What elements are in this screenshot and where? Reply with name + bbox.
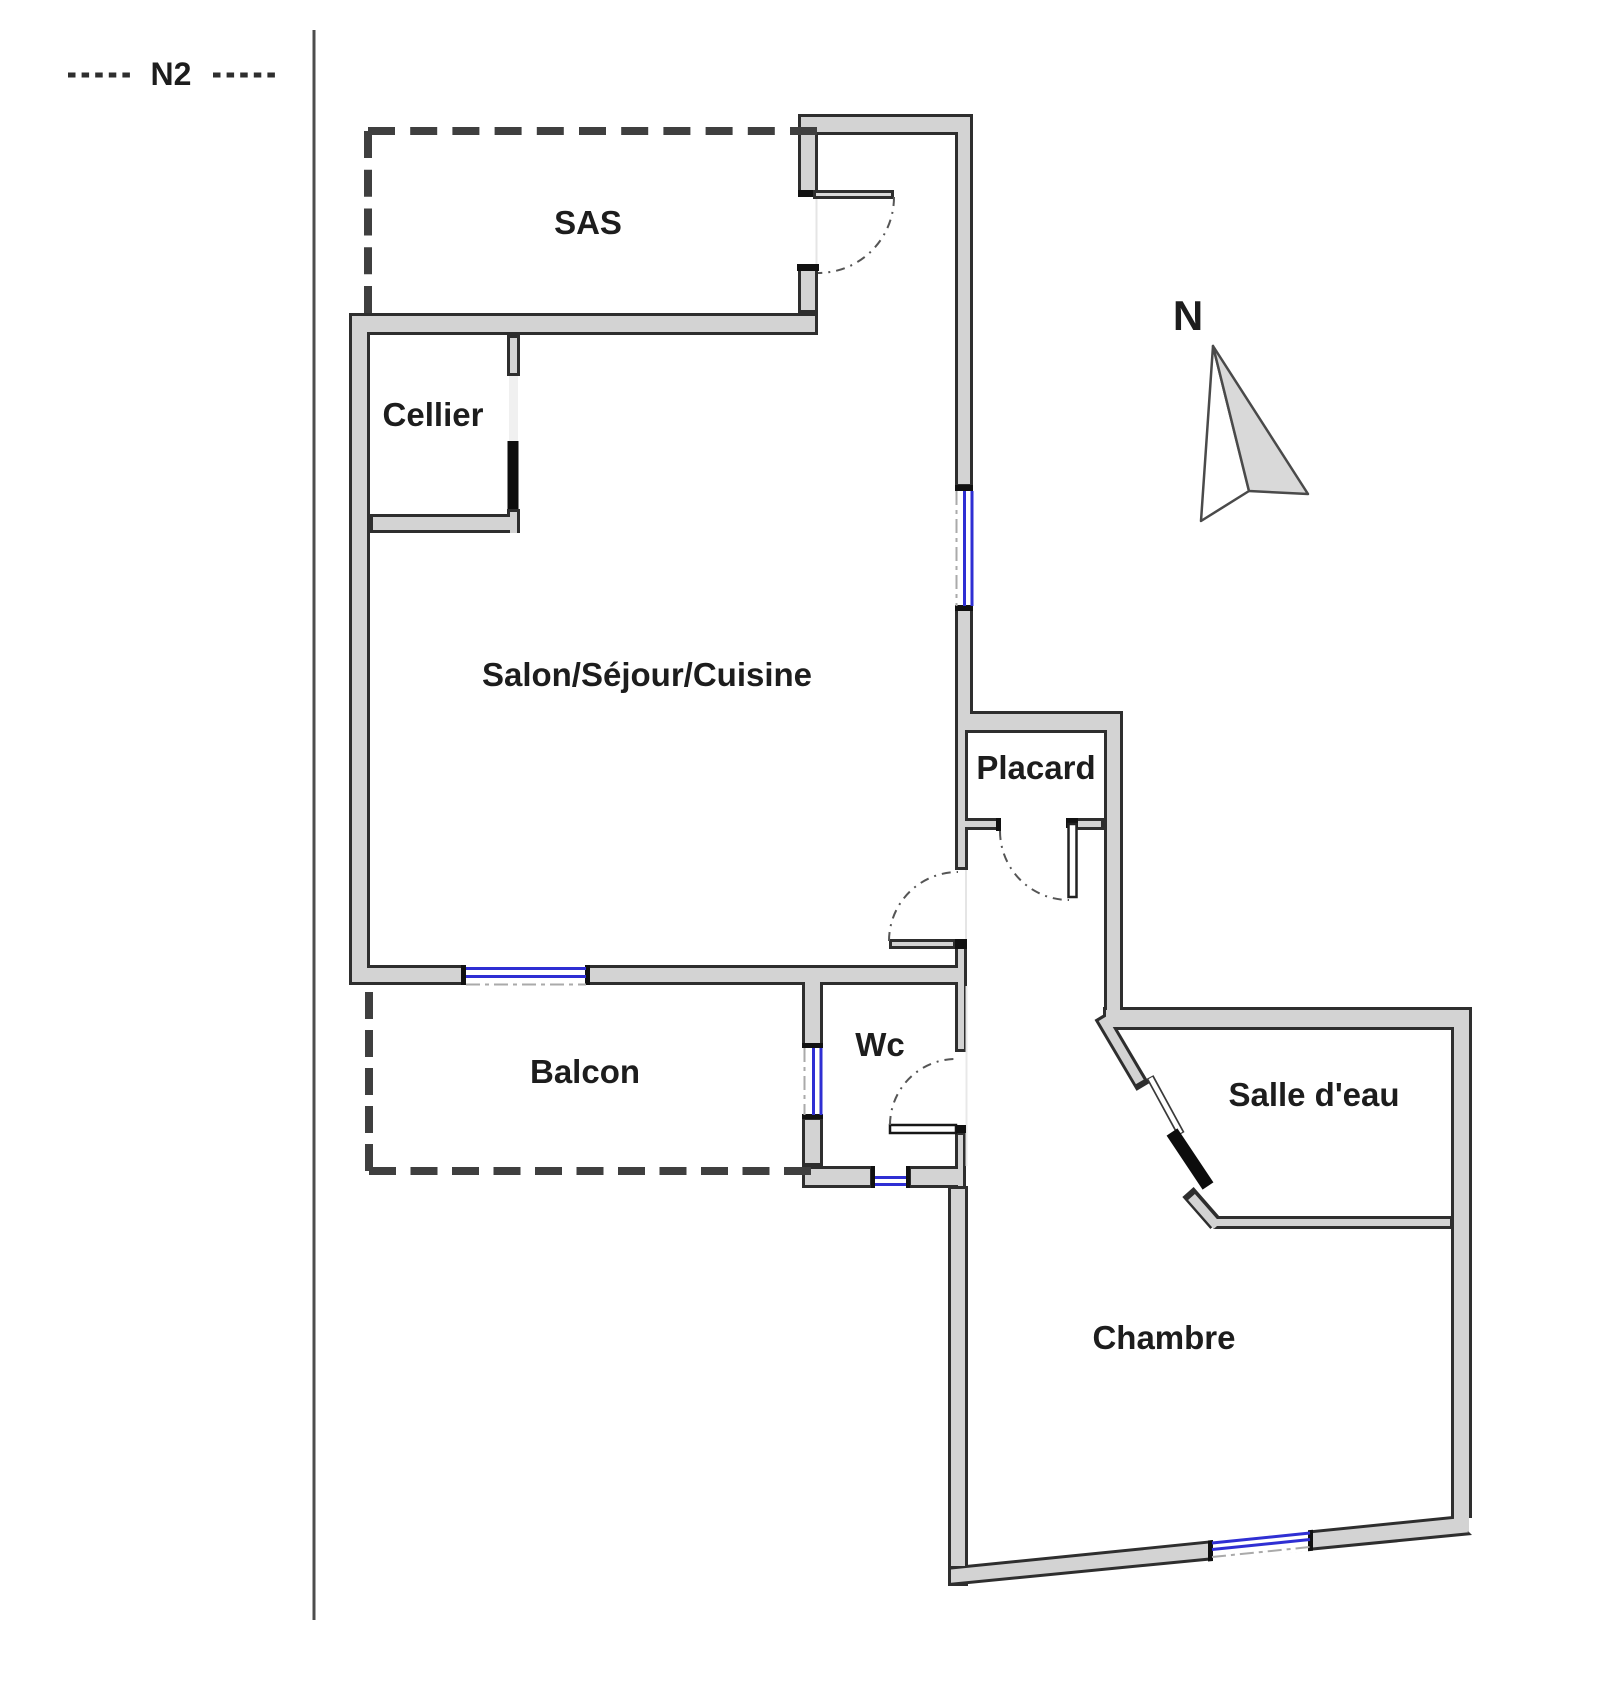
svg-text:Placard: Placard: [976, 749, 1095, 786]
svg-text:Wc: Wc: [855, 1026, 905, 1063]
svg-text:SAS: SAS: [554, 204, 622, 241]
svg-text:Chambre: Chambre: [1092, 1319, 1235, 1356]
svg-text:N2: N2: [151, 56, 192, 92]
svg-text:Cellier: Cellier: [383, 396, 484, 433]
svg-text:Balcon: Balcon: [530, 1053, 640, 1090]
svg-text:N: N: [1173, 292, 1203, 339]
svg-text:Salle d'eau: Salle d'eau: [1228, 1076, 1399, 1113]
svg-text:Salon/Séjour/Cuisine: Salon/Séjour/Cuisine: [482, 656, 812, 693]
